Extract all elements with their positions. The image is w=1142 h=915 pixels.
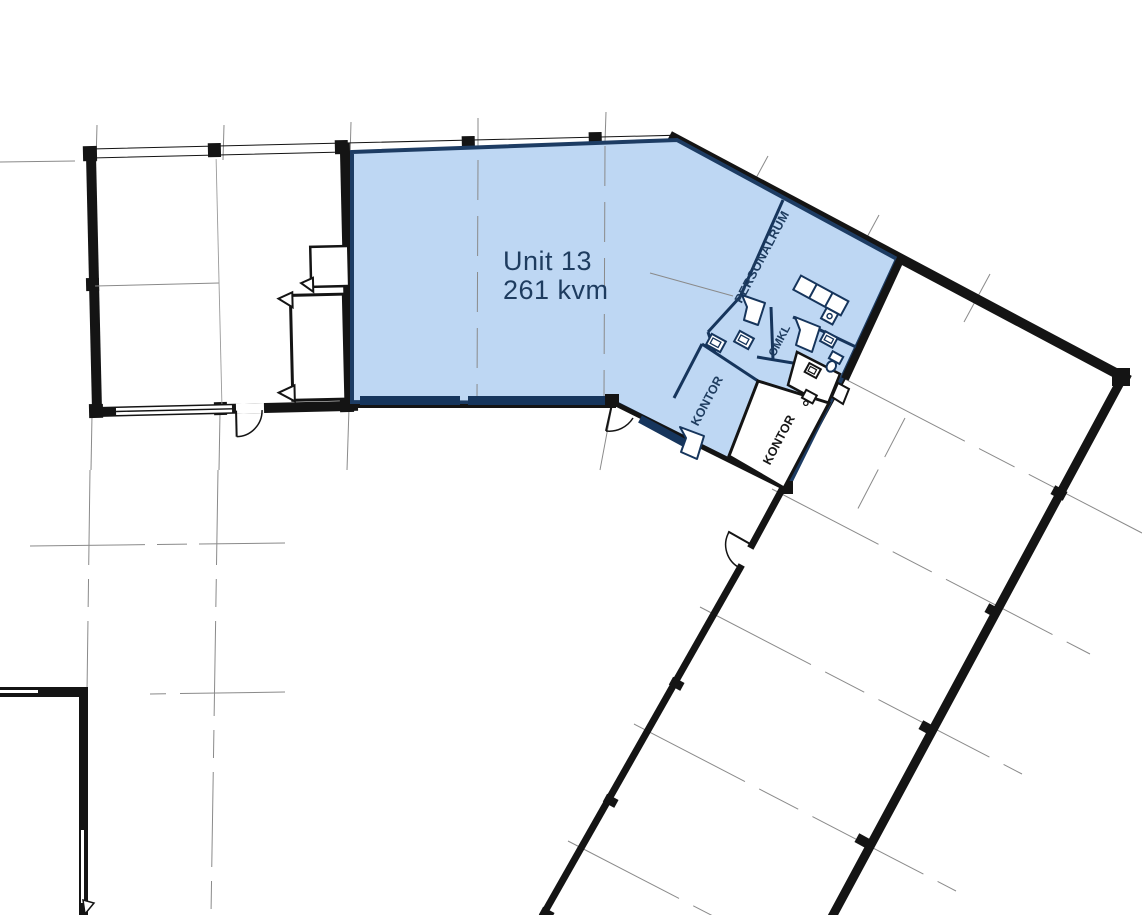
closet-shafts xyxy=(275,246,352,402)
unit-13-highlight xyxy=(352,140,897,489)
unit-name: Unit 13 xyxy=(503,247,609,276)
unit-area-label: Unit 13 261 kvm xyxy=(503,247,609,305)
unit-area: 261 kvm xyxy=(503,276,609,305)
floor-plan-page: Unit 13 261 kvm PERSONALRUM OMKL KONTOR … xyxy=(0,0,1142,915)
floor-plan-canvas xyxy=(0,0,1142,915)
wall-stubs xyxy=(539,485,1068,915)
bottom-left-wall xyxy=(0,687,94,915)
door-left-room xyxy=(236,403,265,437)
